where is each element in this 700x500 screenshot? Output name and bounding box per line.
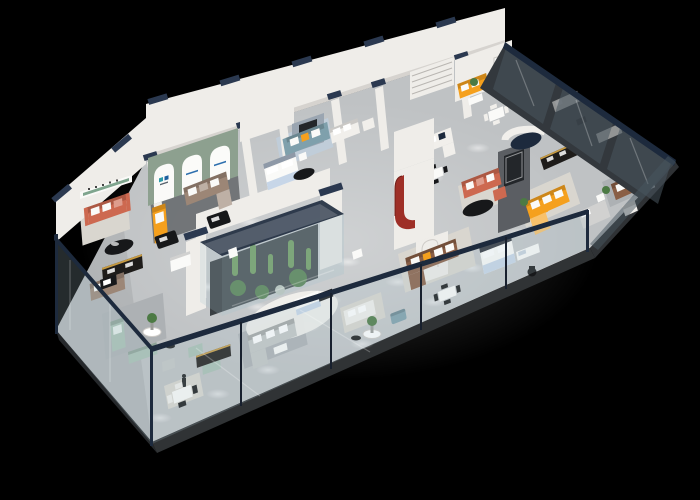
showroom-scene: 3D isometric cutaway floor plan render o… — [0, 0, 700, 500]
red-ribbon-pillar — [394, 118, 434, 250]
potted-plant — [470, 78, 478, 86]
floor-plant — [520, 198, 528, 206]
showroom-render: 3D isometric cutaway floor plan render o… — [0, 0, 700, 500]
vase-plant — [147, 313, 157, 323]
